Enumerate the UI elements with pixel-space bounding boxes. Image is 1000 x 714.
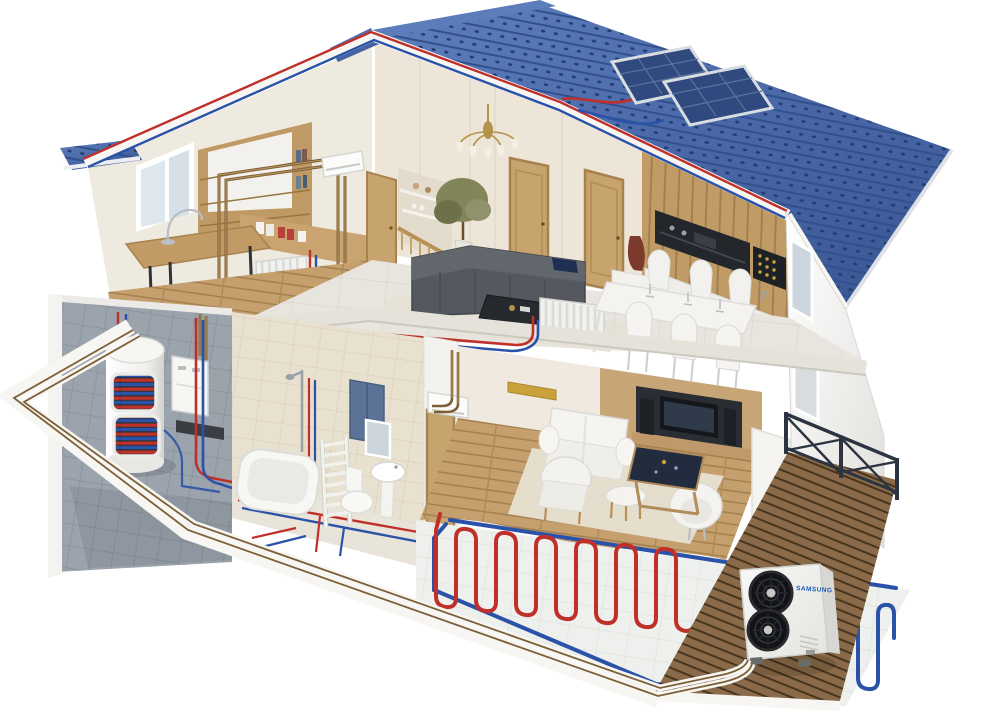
heat-pump-fan-2: [748, 610, 788, 650]
house-heating-cutaway-illustration: SAMSUNG: [0, 0, 1000, 714]
dining-chair-rear: [648, 250, 670, 290]
speaker: [724, 408, 736, 446]
bathroom-mirror: [366, 420, 390, 458]
scene-canvas: SAMSUNG: [0, 0, 1000, 714]
tank-coil-window-1: [112, 374, 156, 411]
bathtub: [234, 447, 322, 518]
heat-pump-unit: SAMSUNG: [740, 564, 840, 676]
tank-coil-window-2: [114, 416, 159, 456]
heat-pump-spec-plate: [806, 650, 815, 654]
bathroom: [232, 312, 424, 568]
heat-pump-fan-1: [750, 572, 792, 614]
speaker: [640, 398, 654, 436]
dining-chair-rear: [690, 260, 712, 300]
gable-window: [791, 240, 812, 320]
